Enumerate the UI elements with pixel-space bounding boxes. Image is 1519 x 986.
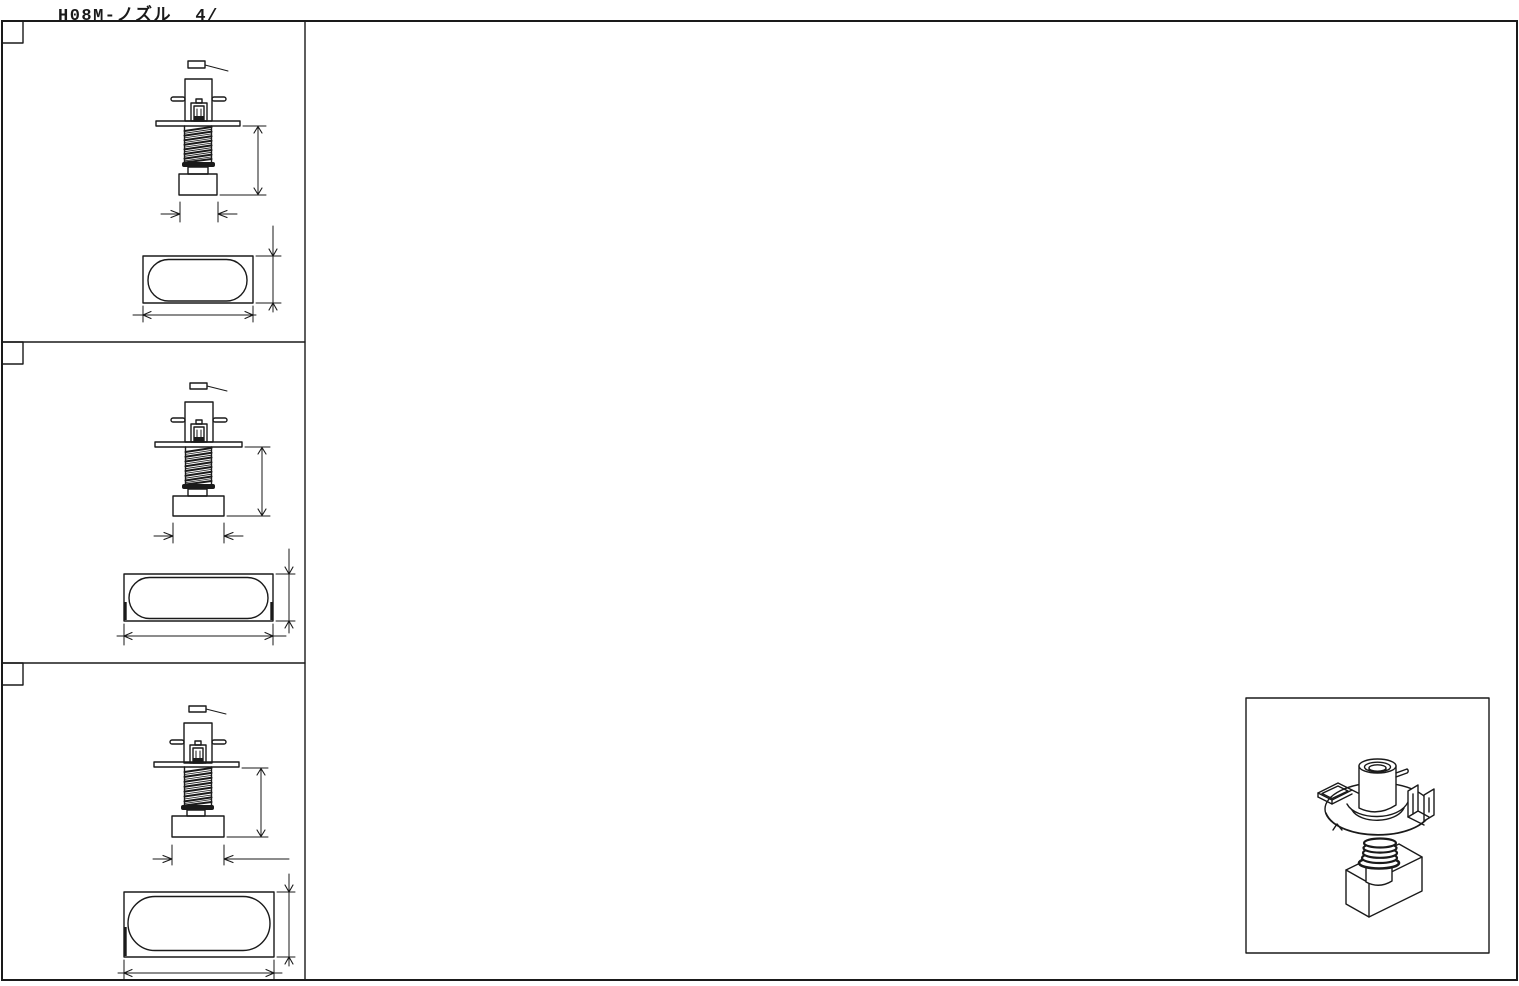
plate-slot — [128, 897, 270, 951]
plate-top-view — [124, 574, 273, 621]
drawing-canvas — [0, 0, 1519, 986]
nozzle-body — [184, 723, 212, 763]
base-block — [173, 496, 224, 516]
nozzle-front-view — [156, 61, 240, 195]
plate-slot — [129, 578, 268, 619]
base-block — [172, 816, 224, 837]
panel-2 — [117, 383, 295, 645]
panel-3 — [118, 706, 295, 979]
neck — [187, 810, 205, 816]
sheet-frame — [2, 21, 1517, 980]
right-pin — [212, 97, 226, 101]
flange — [156, 121, 240, 126]
zone-marker-2 — [2, 342, 23, 364]
nozzle-body — [185, 402, 213, 442]
nozzle-isometric — [1318, 759, 1434, 917]
callout-box — [190, 383, 207, 389]
neck — [188, 167, 208, 174]
base-block — [179, 174, 217, 195]
nozzle-front-view — [154, 706, 239, 837]
right-pin — [212, 740, 226, 744]
left-pin — [171, 97, 185, 101]
plate-top-view — [143, 256, 253, 303]
isometric-detail-box — [1246, 698, 1489, 953]
thread-collar — [182, 484, 215, 489]
nozzle-body — [185, 79, 212, 121]
plate-outline — [124, 574, 273, 621]
panel-1 — [133, 61, 281, 322]
thread-coil — [186, 447, 212, 485]
plate-top-view — [124, 892, 274, 957]
neck — [188, 489, 207, 496]
nozzle-front-view — [155, 383, 242, 516]
zone-marker-3 — [2, 663, 23, 685]
left-pin — [171, 418, 185, 422]
callout-box — [189, 706, 206, 712]
plate-outline — [124, 892, 274, 957]
callout-box — [188, 61, 205, 68]
left-pin — [170, 740, 184, 744]
flange — [155, 442, 242, 447]
iso-side-pin — [1396, 769, 1408, 777]
plate-slot — [148, 260, 247, 302]
drawing-sheet: H08M-ノズル 4/ — [0, 0, 1519, 986]
thread-collar — [181, 805, 214, 810]
thread-coil — [185, 767, 212, 806]
zone-marker-1 — [2, 21, 23, 43]
dimension-lines — [118, 768, 295, 979]
thread-coil — [185, 126, 212, 163]
plate-outline — [143, 256, 253, 303]
thread-collar — [182, 162, 215, 167]
right-pin — [213, 418, 227, 422]
